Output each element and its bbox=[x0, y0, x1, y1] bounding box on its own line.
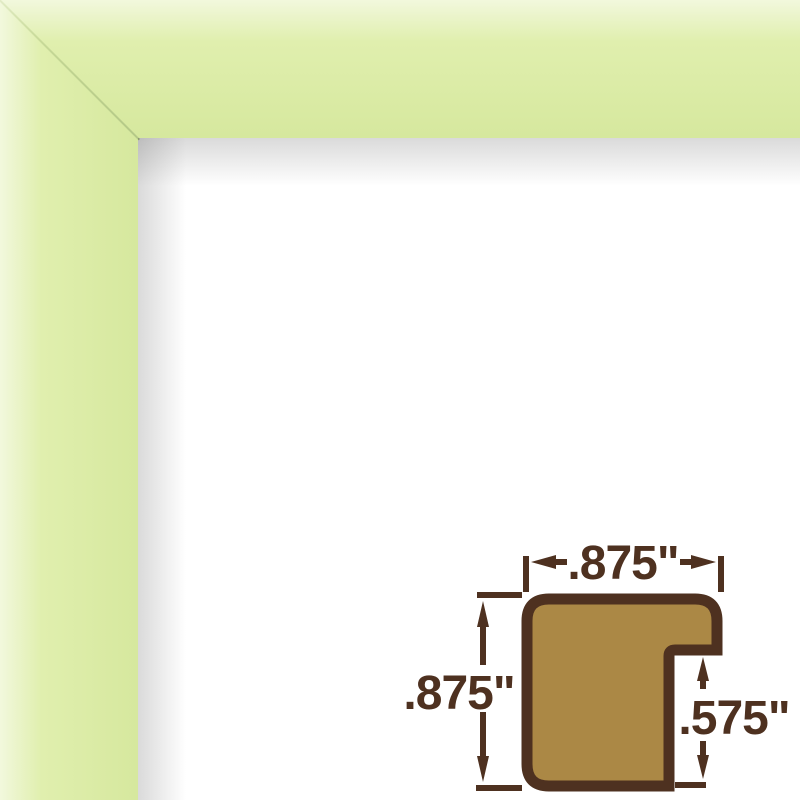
frame-top-rail bbox=[0, 0, 800, 138]
dimension-top-width-label: .875" bbox=[567, 537, 678, 590]
arrow-left-icon bbox=[531, 555, 556, 569]
dimension-rabbet-depth-label: .575" bbox=[678, 692, 789, 745]
dimension-top-width: .875" bbox=[526, 537, 721, 592]
top-rail-shadow bbox=[138, 138, 800, 186]
arrow-right-icon bbox=[691, 555, 716, 569]
arrow-down-icon bbox=[697, 755, 709, 779]
arrow-up-icon bbox=[697, 657, 709, 681]
left-rail-shadow bbox=[138, 138, 186, 800]
profile-dimension-diagram: .875" .875" .575" bbox=[380, 535, 800, 800]
arrow-up-icon bbox=[477, 601, 489, 627]
dimension-left-height: .875" bbox=[403, 595, 522, 788]
dimension-rabbet-depth: .575" bbox=[675, 657, 790, 785]
product-image: .875" .875" .575" bbox=[0, 0, 800, 800]
arrow-down-icon bbox=[477, 756, 489, 782]
dimension-left-height-label: .875" bbox=[403, 667, 514, 720]
